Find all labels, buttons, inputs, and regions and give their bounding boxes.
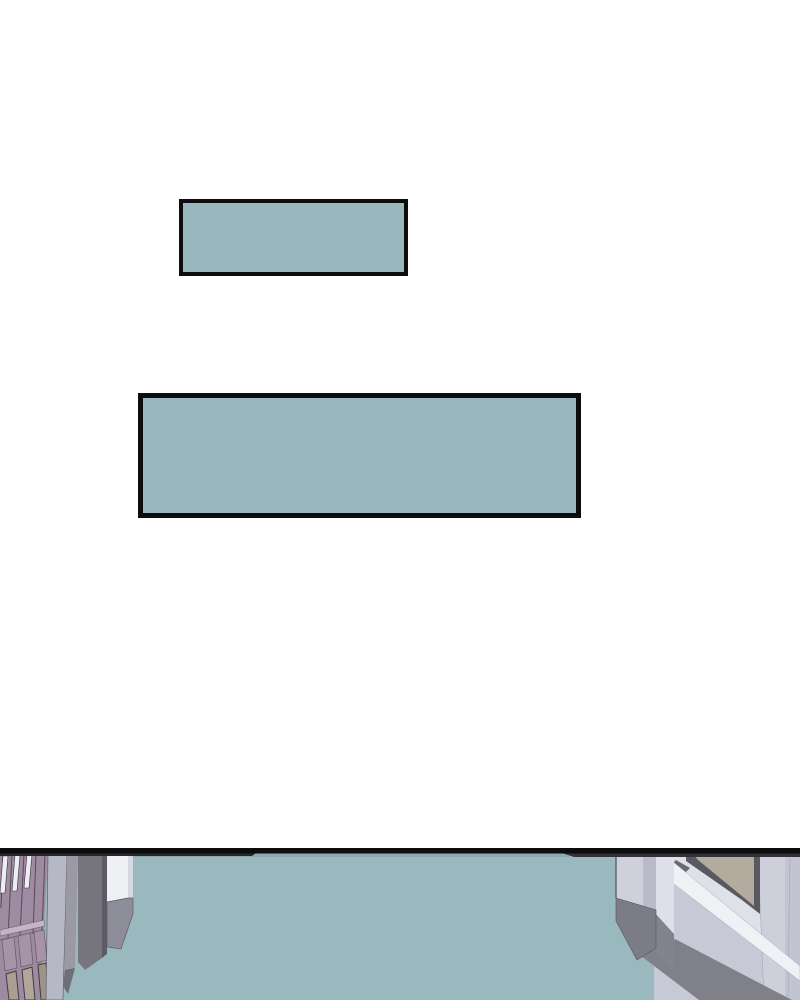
caption-box-large	[138, 393, 581, 518]
facade-panel	[2, 937, 17, 971]
caption-box-small	[179, 199, 408, 276]
pilaster-white-side	[128, 853, 133, 898]
facade-panel	[18, 933, 33, 967]
pillar-side	[643, 854, 656, 910]
comic-panel	[0, 848, 800, 1000]
pilaster-edge	[102, 853, 107, 958]
pillar-face	[616, 854, 643, 906]
border-shadow-right	[562, 853, 800, 857]
street-scene-illustration	[0, 848, 800, 1000]
panel-top-border	[0, 848, 800, 854]
pilaster-dark	[78, 853, 102, 970]
pilaster-light	[46, 853, 67, 1000]
pilaster-white	[107, 853, 128, 902]
